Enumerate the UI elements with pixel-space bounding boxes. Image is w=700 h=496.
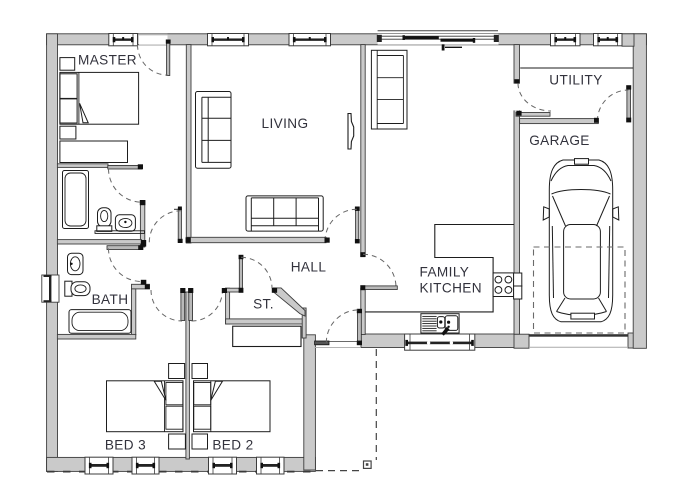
svg-text:MASTER: MASTER xyxy=(78,53,137,68)
svg-text:KITCHEN: KITCHEN xyxy=(420,281,482,296)
svg-text:BATH: BATH xyxy=(92,292,129,307)
svg-text:BED 3: BED 3 xyxy=(105,438,146,453)
svg-text:UTILITY: UTILITY xyxy=(549,73,602,88)
svg-text:FAMILY: FAMILY xyxy=(420,265,470,280)
svg-text:GARAGE: GARAGE xyxy=(529,133,590,148)
svg-text:BED 2: BED 2 xyxy=(212,438,253,453)
svg-text:ST.: ST. xyxy=(253,297,274,312)
svg-text:LIVING: LIVING xyxy=(262,116,309,131)
svg-text:HALL: HALL xyxy=(291,260,327,275)
